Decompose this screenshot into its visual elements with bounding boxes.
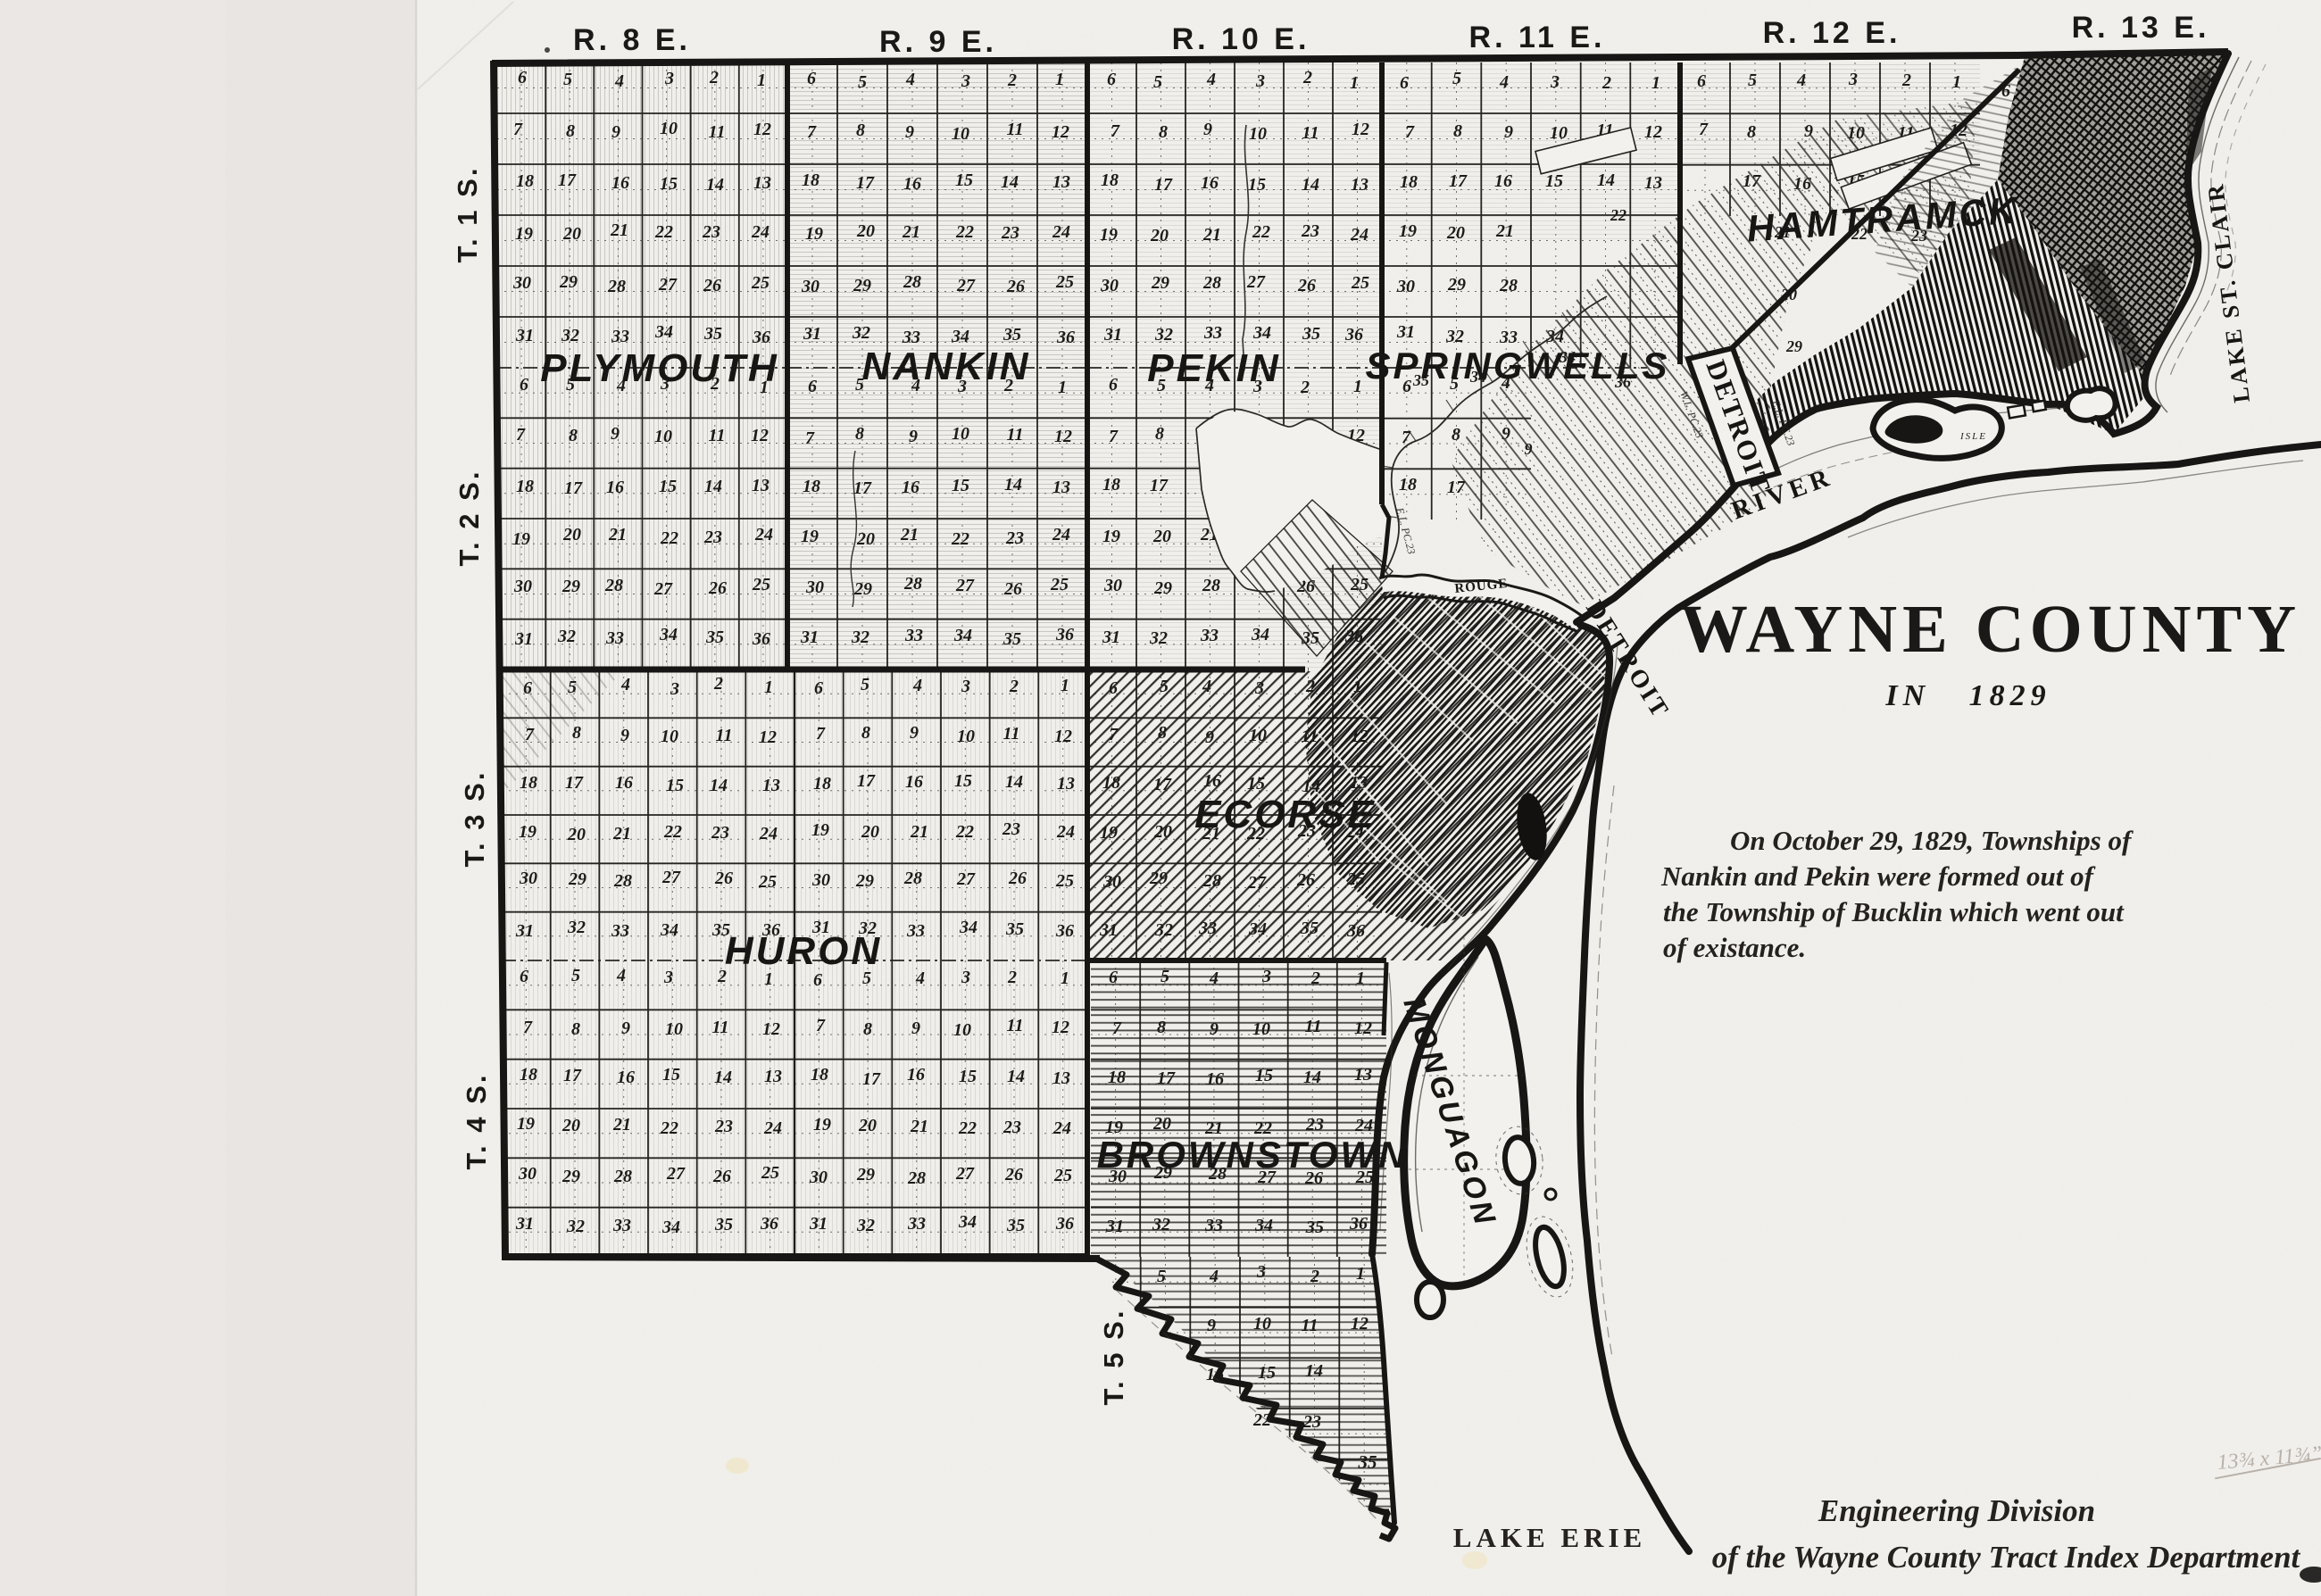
svg-text:22: 22 bbox=[660, 528, 678, 548]
svg-text:9: 9 bbox=[611, 424, 620, 444]
svg-text:6: 6 bbox=[520, 375, 528, 395]
svg-text:17: 17 bbox=[853, 478, 872, 498]
svg-text:35: 35 bbox=[703, 324, 722, 344]
svg-text:6: 6 bbox=[1109, 678, 1118, 698]
svg-text:32: 32 bbox=[567, 918, 586, 937]
svg-text:18: 18 bbox=[803, 477, 820, 496]
svg-text:14: 14 bbox=[706, 175, 724, 195]
svg-text:29: 29 bbox=[559, 272, 578, 292]
svg-text:29: 29 bbox=[1447, 275, 1466, 295]
svg-text:30: 30 bbox=[1100, 276, 1119, 295]
svg-text:29: 29 bbox=[1149, 869, 1168, 888]
svg-text:13: 13 bbox=[752, 476, 770, 495]
svg-text:16: 16 bbox=[907, 1065, 925, 1085]
svg-text:1: 1 bbox=[1061, 968, 1069, 988]
svg-text:the Township of Bucklin which: the Township of Bucklin which went out bbox=[1663, 896, 2125, 927]
svg-text:3: 3 bbox=[961, 71, 970, 91]
svg-text:16: 16 bbox=[1206, 1069, 1224, 1089]
svg-text:17: 17 bbox=[563, 1066, 582, 1085]
svg-text:29: 29 bbox=[562, 577, 580, 596]
svg-text:3: 3 bbox=[670, 679, 679, 699]
svg-text:34: 34 bbox=[959, 918, 977, 937]
svg-text:15: 15 bbox=[662, 1065, 680, 1085]
svg-text:15: 15 bbox=[955, 170, 973, 190]
svg-text:27: 27 bbox=[661, 868, 681, 887]
svg-text:19: 19 bbox=[1399, 221, 1417, 241]
svg-text:28: 28 bbox=[1202, 871, 1221, 891]
svg-text:7: 7 bbox=[1111, 121, 1120, 141]
svg-text:20: 20 bbox=[861, 822, 879, 842]
svg-text:28: 28 bbox=[903, 869, 922, 888]
svg-text:33: 33 bbox=[612, 1216, 631, 1235]
svg-text:4: 4 bbox=[912, 676, 922, 695]
svg-text:32: 32 bbox=[561, 326, 579, 345]
svg-text:3: 3 bbox=[1254, 678, 1264, 698]
svg-text:22: 22 bbox=[1252, 222, 1270, 242]
svg-text:24: 24 bbox=[1052, 525, 1070, 544]
svg-text:31: 31 bbox=[515, 1214, 534, 1234]
svg-text:21: 21 bbox=[1495, 221, 1514, 241]
svg-text:18: 18 bbox=[813, 774, 831, 794]
svg-text:31: 31 bbox=[1099, 920, 1118, 940]
svg-text:24: 24 bbox=[1354, 1116, 1373, 1135]
svg-text:14: 14 bbox=[1001, 172, 1019, 192]
svg-text:31: 31 bbox=[1103, 325, 1122, 345]
svg-text:2: 2 bbox=[1300, 378, 1310, 397]
svg-text:25: 25 bbox=[761, 1163, 779, 1183]
svg-text:33: 33 bbox=[1203, 323, 1222, 343]
svg-text:11: 11 bbox=[1302, 1316, 1319, 1335]
svg-text:25: 25 bbox=[1053, 1166, 1072, 1185]
svg-text:1: 1 bbox=[1061, 676, 1069, 695]
svg-text:29: 29 bbox=[1153, 578, 1172, 598]
svg-text:13: 13 bbox=[764, 1067, 782, 1086]
svg-text:24: 24 bbox=[1350, 225, 1368, 245]
svg-text:4: 4 bbox=[905, 70, 915, 89]
svg-text:6: 6 bbox=[814, 678, 823, 698]
svg-text:34: 34 bbox=[661, 1218, 680, 1237]
svg-text:3: 3 bbox=[664, 69, 674, 88]
svg-text:HURON: HURON bbox=[725, 929, 882, 973]
svg-text:35: 35 bbox=[1002, 325, 1021, 345]
svg-text:35: 35 bbox=[1006, 1216, 1025, 1235]
svg-text:28: 28 bbox=[1499, 276, 1518, 295]
svg-text:32: 32 bbox=[566, 1217, 585, 1236]
svg-text:19: 19 bbox=[517, 1114, 535, 1134]
svg-text:29: 29 bbox=[1785, 337, 1802, 355]
svg-text:35: 35 bbox=[705, 628, 724, 647]
svg-text:1: 1 bbox=[1058, 378, 1067, 397]
svg-text:36: 36 bbox=[1055, 1214, 1074, 1234]
svg-text:R. 13 E.: R. 13 E. bbox=[2072, 11, 2210, 45]
svg-text:10: 10 bbox=[953, 1020, 971, 1040]
svg-text:25: 25 bbox=[758, 872, 777, 892]
svg-text:10: 10 bbox=[952, 424, 969, 444]
svg-text:13: 13 bbox=[1350, 773, 1368, 793]
svg-text:6: 6 bbox=[813, 970, 822, 990]
svg-text:12: 12 bbox=[1351, 1314, 1368, 1334]
svg-text:11: 11 bbox=[1302, 727, 1319, 746]
svg-text:23: 23 bbox=[1002, 1118, 1021, 1137]
svg-text:27: 27 bbox=[1247, 873, 1267, 893]
svg-text:12: 12 bbox=[1644, 122, 1662, 142]
svg-text:13: 13 bbox=[1057, 774, 1075, 794]
svg-text:Engineering Division: Engineering Division bbox=[1818, 1493, 2095, 1528]
svg-text:35: 35 bbox=[714, 1215, 733, 1234]
svg-text:8: 8 bbox=[569, 426, 578, 445]
svg-text:24: 24 bbox=[1052, 1118, 1071, 1138]
svg-text:32: 32 bbox=[1445, 327, 1464, 346]
svg-text:17: 17 bbox=[862, 1069, 881, 1089]
svg-text:20: 20 bbox=[562, 1116, 580, 1135]
svg-text:30: 30 bbox=[809, 1168, 828, 1187]
svg-text:18: 18 bbox=[516, 171, 534, 191]
svg-text:34: 34 bbox=[1251, 625, 1269, 644]
svg-text:21: 21 bbox=[612, 1115, 631, 1135]
svg-text:8: 8 bbox=[856, 121, 865, 140]
svg-text:34: 34 bbox=[660, 920, 678, 940]
svg-text:13: 13 bbox=[1351, 175, 1368, 195]
svg-text:23: 23 bbox=[1005, 528, 1024, 548]
svg-text:9: 9 bbox=[1205, 727, 1214, 747]
svg-text:35: 35 bbox=[1002, 629, 1021, 649]
svg-text:T. 4 S.: T. 4 S. bbox=[461, 1073, 492, 1170]
svg-text:26: 26 bbox=[1297, 276, 1316, 295]
svg-text:11: 11 bbox=[1003, 724, 1020, 744]
svg-text:4: 4 bbox=[1209, 1267, 1219, 1286]
svg-text:14: 14 bbox=[1005, 772, 1023, 792]
svg-text:2: 2 bbox=[1305, 677, 1315, 696]
svg-text:13: 13 bbox=[1052, 478, 1070, 497]
svg-text:15: 15 bbox=[1255, 1066, 1273, 1085]
svg-text:4: 4 bbox=[1202, 677, 1211, 696]
svg-text:19: 19 bbox=[813, 1115, 831, 1135]
svg-text:32: 32 bbox=[1149, 628, 1168, 648]
svg-text:14: 14 bbox=[1303, 1068, 1321, 1087]
svg-text:32: 32 bbox=[852, 323, 870, 343]
svg-text:30: 30 bbox=[805, 578, 824, 597]
svg-text:24: 24 bbox=[759, 824, 778, 844]
svg-text:28: 28 bbox=[613, 1167, 632, 1186]
svg-text:11: 11 bbox=[1007, 1016, 1024, 1035]
svg-text:15: 15 bbox=[954, 771, 972, 791]
svg-text:9: 9 bbox=[1504, 122, 1513, 142]
svg-text:30: 30 bbox=[1103, 576, 1122, 595]
svg-text:19: 19 bbox=[512, 529, 530, 549]
svg-text:21: 21 bbox=[1202, 225, 1221, 245]
svg-text:19: 19 bbox=[519, 822, 537, 842]
svg-text:20: 20 bbox=[1150, 226, 1169, 245]
svg-text:20: 20 bbox=[562, 224, 581, 244]
svg-text:13: 13 bbox=[1052, 1068, 1070, 1088]
svg-text:17: 17 bbox=[1449, 171, 1468, 191]
svg-text:35: 35 bbox=[1005, 919, 1024, 939]
svg-text:NANKIN: NANKIN bbox=[861, 345, 1030, 388]
svg-text:1: 1 bbox=[1350, 73, 1359, 93]
svg-text:23: 23 bbox=[1001, 223, 1019, 243]
svg-text:3: 3 bbox=[1256, 1262, 1266, 1282]
svg-text:13: 13 bbox=[1644, 173, 1662, 193]
svg-text:10: 10 bbox=[1550, 123, 1568, 143]
svg-text:23: 23 bbox=[1302, 1412, 1321, 1432]
svg-text:20: 20 bbox=[562, 525, 581, 544]
svg-text:34: 34 bbox=[951, 327, 969, 346]
svg-text:9: 9 bbox=[910, 723, 919, 743]
svg-text:23: 23 bbox=[714, 1117, 733, 1136]
svg-text:26: 26 bbox=[1004, 1165, 1023, 1185]
svg-text:16: 16 bbox=[903, 174, 921, 194]
svg-text:6: 6 bbox=[1107, 70, 1116, 89]
svg-text:5: 5 bbox=[1160, 967, 1169, 986]
svg-text:19: 19 bbox=[515, 224, 533, 244]
svg-text:ISLE: ISLE bbox=[1959, 431, 1987, 442]
svg-text:28: 28 bbox=[1202, 273, 1221, 293]
svg-text:5: 5 bbox=[1157, 1267, 1166, 1286]
svg-text:2: 2 bbox=[1302, 68, 1312, 87]
svg-text:7: 7 bbox=[1109, 725, 1119, 744]
svg-text:23: 23 bbox=[1305, 1115, 1324, 1135]
svg-text:10: 10 bbox=[1252, 1019, 1270, 1039]
svg-text:32: 32 bbox=[1154, 325, 1173, 345]
svg-text:17: 17 bbox=[565, 773, 584, 793]
svg-text:19: 19 bbox=[1100, 225, 1118, 245]
svg-text:6: 6 bbox=[808, 377, 817, 396]
svg-text:T. 1 S.: T. 1 S. bbox=[452, 166, 483, 263]
svg-text:1: 1 bbox=[757, 71, 766, 90]
svg-text:7: 7 bbox=[525, 725, 535, 744]
svg-text:PLYMOUTH: PLYMOUTH bbox=[540, 346, 779, 390]
svg-text:15: 15 bbox=[1258, 1363, 1276, 1383]
svg-text:33: 33 bbox=[904, 626, 923, 645]
svg-text:31: 31 bbox=[515, 921, 534, 941]
svg-text:32: 32 bbox=[557, 627, 576, 646]
svg-text:3: 3 bbox=[1848, 70, 1858, 89]
svg-text:3: 3 bbox=[1261, 967, 1271, 986]
svg-text:17: 17 bbox=[1154, 175, 1173, 195]
svg-text:12: 12 bbox=[762, 1019, 780, 1039]
svg-text:7: 7 bbox=[807, 122, 817, 142]
svg-text:12: 12 bbox=[1054, 727, 1072, 746]
svg-text:24: 24 bbox=[751, 222, 770, 242]
svg-text:18: 18 bbox=[1400, 172, 1418, 192]
svg-text:25: 25 bbox=[1050, 575, 1069, 594]
svg-text:20: 20 bbox=[1152, 527, 1171, 546]
svg-text:32: 32 bbox=[1154, 920, 1173, 940]
svg-text:8: 8 bbox=[571, 1019, 580, 1039]
svg-text:12: 12 bbox=[751, 426, 769, 445]
svg-text:19: 19 bbox=[1102, 527, 1120, 546]
svg-text:8: 8 bbox=[572, 723, 581, 743]
svg-text:1: 1 bbox=[1356, 1264, 1365, 1284]
svg-text:Nankin and Pekin were formed o: Nankin and Pekin were formed out of bbox=[1660, 860, 2096, 892]
svg-text:10: 10 bbox=[665, 1019, 683, 1039]
svg-text:34: 34 bbox=[953, 626, 972, 645]
svg-text:12: 12 bbox=[1352, 120, 1369, 139]
svg-text:33: 33 bbox=[611, 327, 629, 346]
svg-text:19: 19 bbox=[1100, 823, 1118, 843]
svg-text:19: 19 bbox=[811, 820, 829, 840]
svg-text:6: 6 bbox=[518, 68, 527, 87]
svg-text:18: 18 bbox=[811, 1065, 828, 1085]
svg-text:20: 20 bbox=[1446, 223, 1465, 243]
svg-text:18: 18 bbox=[1101, 170, 1119, 190]
svg-text:SPRINGWELLS: SPRINGWELLS bbox=[1365, 345, 1669, 387]
svg-text:14: 14 bbox=[1302, 175, 1319, 195]
svg-text:4: 4 bbox=[614, 71, 624, 91]
svg-text:R. 12 E.: R. 12 E. bbox=[1763, 16, 1901, 50]
svg-text:35: 35 bbox=[1300, 919, 1319, 938]
svg-text:32: 32 bbox=[856, 1216, 875, 1235]
svg-text:2: 2 bbox=[1601, 73, 1611, 93]
svg-text:3: 3 bbox=[1255, 71, 1265, 91]
svg-text:31: 31 bbox=[1396, 322, 1415, 342]
svg-text:33: 33 bbox=[1204, 1216, 1223, 1235]
svg-text:2: 2 bbox=[1310, 1267, 1319, 1286]
svg-text:16: 16 bbox=[606, 478, 624, 497]
svg-text:5: 5 bbox=[858, 72, 867, 92]
svg-text:1: 1 bbox=[1651, 73, 1660, 93]
svg-text:33: 33 bbox=[605, 628, 624, 648]
svg-text:14: 14 bbox=[710, 776, 728, 795]
svg-text:30: 30 bbox=[512, 273, 531, 293]
svg-text:18: 18 bbox=[516, 477, 534, 496]
svg-text:29: 29 bbox=[853, 276, 871, 295]
svg-text:16: 16 bbox=[905, 772, 923, 792]
svg-text:36: 36 bbox=[1349, 1214, 1368, 1234]
svg-text:10: 10 bbox=[654, 427, 672, 446]
svg-text:12: 12 bbox=[1351, 727, 1368, 746]
svg-text:29: 29 bbox=[855, 871, 874, 891]
svg-text:8: 8 bbox=[566, 121, 575, 141]
svg-text:15: 15 bbox=[959, 1067, 977, 1086]
svg-text:36: 36 bbox=[1344, 325, 1363, 345]
svg-text:27: 27 bbox=[956, 869, 976, 889]
svg-text:8: 8 bbox=[863, 1019, 872, 1039]
svg-text:15: 15 bbox=[659, 477, 677, 496]
svg-text:T. 5 S.: T. 5 S. bbox=[1098, 1309, 1129, 1406]
svg-text:16: 16 bbox=[1494, 171, 1512, 191]
svg-text:12: 12 bbox=[1054, 427, 1072, 446]
svg-text:14: 14 bbox=[1007, 1067, 1025, 1086]
svg-text:13: 13 bbox=[1354, 1065, 1372, 1085]
svg-text:27: 27 bbox=[666, 1164, 686, 1184]
svg-text:2: 2 bbox=[1007, 968, 1017, 987]
svg-text:LAKE ERIE: LAKE ERIE bbox=[1453, 1522, 1646, 1553]
svg-text:33: 33 bbox=[1200, 626, 1219, 645]
svg-text:4: 4 bbox=[1796, 71, 1806, 90]
svg-text:19: 19 bbox=[801, 527, 819, 546]
svg-text:3: 3 bbox=[663, 968, 673, 987]
svg-text:20: 20 bbox=[1152, 1114, 1171, 1134]
svg-text:8: 8 bbox=[1159, 122, 1168, 142]
svg-text:26: 26 bbox=[712, 1167, 731, 1186]
svg-text:R. 10 E.: R. 10 E. bbox=[1172, 22, 1310, 56]
svg-text:34: 34 bbox=[659, 625, 678, 644]
svg-text:R. 8 E.: R. 8 E. bbox=[573, 23, 691, 57]
svg-text:T. 3 S.: T. 3 S. bbox=[459, 770, 490, 868]
svg-text:2: 2 bbox=[709, 68, 719, 87]
svg-text:15: 15 bbox=[1545, 171, 1563, 191]
svg-text:31: 31 bbox=[1105, 1217, 1124, 1236]
svg-text:9: 9 bbox=[905, 122, 914, 142]
svg-text:26: 26 bbox=[708, 578, 727, 598]
svg-text:10: 10 bbox=[1249, 726, 1267, 745]
svg-text:24: 24 bbox=[763, 1118, 782, 1138]
svg-text:BROWNSTOWN: BROWNSTOWN bbox=[1097, 1134, 1409, 1176]
svg-text:9: 9 bbox=[911, 1018, 920, 1038]
svg-text:1: 1 bbox=[764, 677, 773, 697]
svg-text:13: 13 bbox=[762, 776, 780, 795]
svg-text:15: 15 bbox=[952, 476, 969, 495]
svg-text:36: 36 bbox=[760, 1214, 778, 1234]
svg-text:35: 35 bbox=[1305, 1218, 1324, 1237]
svg-text:8: 8 bbox=[1158, 723, 1167, 743]
svg-text:14: 14 bbox=[714, 1068, 732, 1087]
svg-text:10: 10 bbox=[661, 727, 678, 746]
svg-text:20: 20 bbox=[1153, 822, 1172, 842]
svg-text:21: 21 bbox=[900, 525, 919, 544]
svg-text:17: 17 bbox=[857, 771, 876, 791]
svg-text:35: 35 bbox=[1358, 1451, 1377, 1473]
svg-text:25: 25 bbox=[751, 273, 770, 293]
svg-text:11: 11 bbox=[1007, 120, 1024, 139]
svg-text:R. 9 E.: R. 9 E. bbox=[879, 25, 997, 59]
svg-text:26: 26 bbox=[714, 869, 733, 888]
svg-text:17: 17 bbox=[1153, 775, 1172, 794]
svg-text:36: 36 bbox=[1344, 627, 1363, 646]
svg-text:8: 8 bbox=[855, 424, 864, 444]
svg-text:11: 11 bbox=[709, 426, 726, 445]
svg-text:18: 18 bbox=[520, 1065, 537, 1085]
svg-text:25: 25 bbox=[1351, 273, 1369, 293]
svg-text:4: 4 bbox=[1209, 968, 1219, 988]
svg-text:25: 25 bbox=[1346, 869, 1365, 889]
svg-text:5: 5 bbox=[1748, 71, 1757, 90]
svg-text:7: 7 bbox=[1405, 122, 1415, 142]
svg-text:32: 32 bbox=[1152, 1215, 1170, 1234]
svg-text:23: 23 bbox=[1002, 819, 1020, 839]
svg-text:36: 36 bbox=[752, 328, 770, 347]
svg-text:18: 18 bbox=[1102, 773, 1120, 793]
svg-text:36: 36 bbox=[1056, 328, 1075, 347]
svg-text:34: 34 bbox=[1248, 919, 1267, 939]
svg-text:21: 21 bbox=[910, 1117, 928, 1136]
svg-text:7: 7 bbox=[1112, 1018, 1122, 1038]
svg-text:28: 28 bbox=[903, 272, 921, 292]
svg-text:18: 18 bbox=[1102, 475, 1120, 495]
svg-text:5: 5 bbox=[571, 966, 580, 985]
svg-text:17: 17 bbox=[1150, 476, 1169, 495]
svg-text:14: 14 bbox=[1597, 170, 1615, 190]
svg-text:3: 3 bbox=[961, 677, 970, 696]
svg-text:5: 5 bbox=[1160, 677, 1169, 696]
svg-text:36: 36 bbox=[1055, 625, 1074, 644]
svg-text:31: 31 bbox=[515, 326, 534, 345]
svg-text:16: 16 bbox=[902, 478, 919, 497]
svg-text:22: 22 bbox=[654, 222, 673, 242]
svg-text:36: 36 bbox=[752, 629, 770, 649]
svg-text:1: 1 bbox=[1055, 70, 1064, 89]
svg-text:32: 32 bbox=[851, 628, 869, 647]
svg-text:31: 31 bbox=[514, 629, 533, 649]
svg-text:16: 16 bbox=[617, 1068, 635, 1087]
svg-text:5: 5 bbox=[568, 677, 577, 697]
svg-text:31: 31 bbox=[803, 324, 821, 344]
svg-text:10: 10 bbox=[660, 119, 678, 138]
svg-text:21: 21 bbox=[612, 824, 631, 844]
svg-text:24: 24 bbox=[754, 525, 773, 544]
svg-text:26: 26 bbox=[703, 276, 721, 295]
